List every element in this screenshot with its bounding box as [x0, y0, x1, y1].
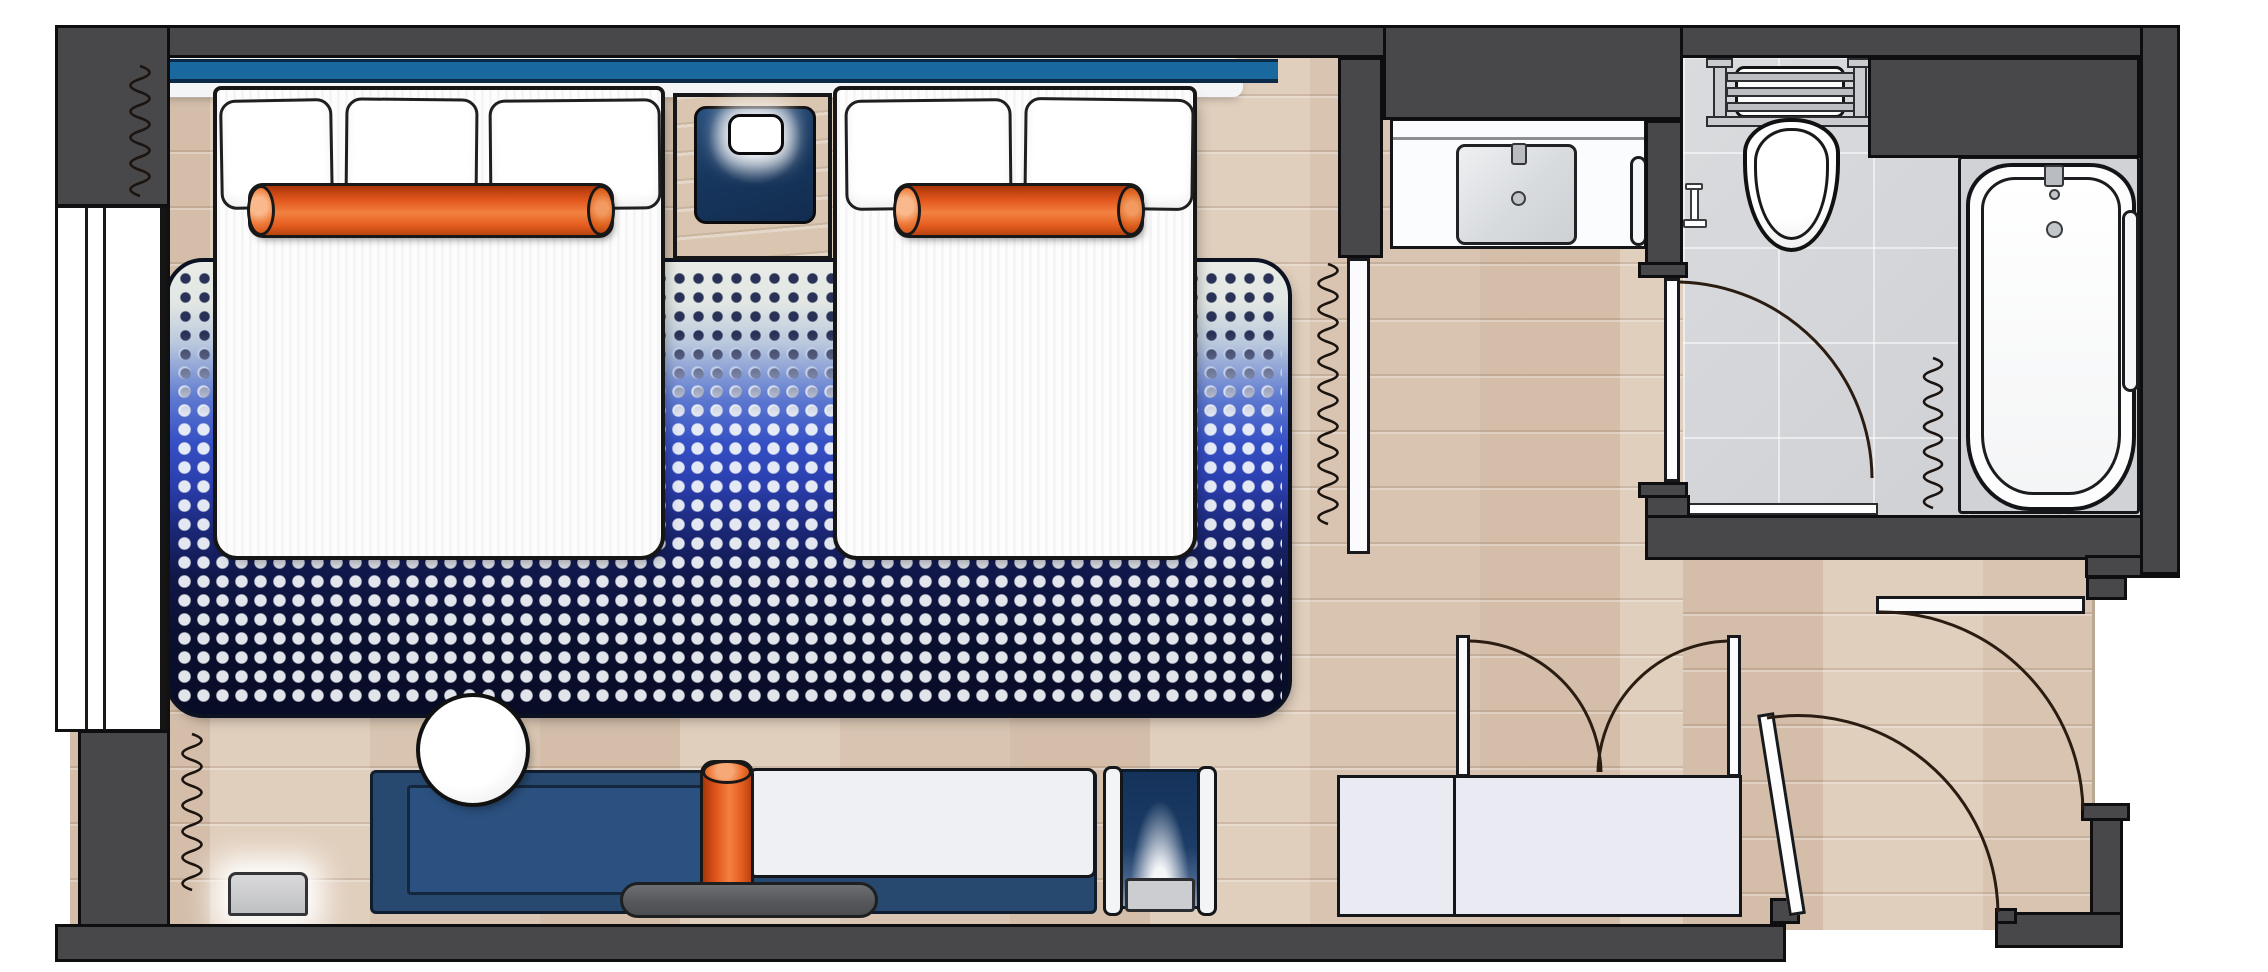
towel-shelf-post: [1853, 63, 1867, 123]
window-pane-line: [103, 208, 106, 729]
tub-towel-bar: [2122, 210, 2139, 392]
lamp: [728, 114, 784, 155]
privacy-panel: [1347, 258, 1370, 554]
wall-jamb-cap: [1995, 908, 2017, 924]
luggage-rack-strap: [1125, 878, 1195, 912]
towel-shelf-cap: [1706, 58, 1733, 68]
window-left: [55, 205, 170, 732]
sink-basin: [1456, 144, 1577, 245]
round-side-table: [416, 693, 530, 807]
wall-jamb-cap: [1638, 262, 1688, 278]
towel-shelf-rail: [1726, 102, 1855, 112]
chaise-cushion: [748, 768, 1096, 878]
towel-shelf-rail: [1726, 72, 1855, 82]
bed-2: [833, 86, 1197, 560]
toilet-bowl: [1743, 118, 1840, 252]
headboard-panel: [163, 59, 1278, 83]
bolster-end-cap: [1117, 185, 1145, 236]
bolster-end-cap: [587, 185, 615, 236]
sofa-bolster: [700, 760, 754, 896]
wall-entry-column: [2090, 805, 2123, 917]
bathtub: [1966, 163, 2136, 511]
bed-2-bolster: [894, 183, 1144, 238]
bolster-end-cap: [702, 760, 752, 784]
tub-drain: [2046, 221, 2063, 238]
connecting-door-leaf: [1876, 596, 2085, 614]
drain: [1511, 191, 1526, 206]
closet: [1337, 775, 1742, 917]
bolster-end-cap: [893, 185, 921, 236]
toilet-paper-holder-cap: [1685, 183, 1703, 190]
vanity-counter: [1390, 118, 1647, 249]
wall-bathroom-left-upper: [1645, 120, 1683, 266]
closet-door-leaf-left: [1456, 635, 1470, 777]
luggage-rack: [1103, 766, 1217, 916]
wall-bottom: [55, 924, 1786, 962]
window-inner-frame: [160, 208, 167, 729]
wall-top: [55, 25, 2180, 58]
luggage-rack-post: [1103, 766, 1123, 916]
towel-shelf-post: [1713, 63, 1727, 123]
closet-divider: [1453, 776, 1456, 916]
wall-bathroom-bottom: [1645, 515, 2180, 560]
faucet: [1511, 143, 1527, 165]
wall-block-bottom-left: [78, 730, 170, 928]
tub-deck: [1958, 156, 2140, 514]
bed-1: [213, 86, 665, 560]
bathroom-threshold: [1688, 503, 1878, 515]
toilet-paper-holder-arm: [1683, 219, 1707, 228]
bed-1-bolster: [248, 183, 614, 238]
toilet-seat-rim: [1754, 128, 1829, 240]
tub-faucet: [2044, 165, 2064, 187]
bench-rail: [620, 882, 878, 918]
backsplash-line: [1393, 137, 1644, 140]
towel-shelf-rail: [1726, 87, 1855, 97]
toilet: [1705, 60, 1875, 255]
luggage-rack-post: [1197, 766, 1217, 916]
wall-right: [2140, 25, 2180, 575]
bolster-end-cap: [247, 185, 275, 236]
floor-plan: [0, 0, 2268, 972]
wall-corner-top-left: [55, 25, 170, 207]
wall-above-vanity: [1383, 25, 1683, 120]
wall-partition-column: [1338, 57, 1383, 258]
tub-faucet-knob: [2049, 189, 2060, 200]
bathroom-door-leaf: [1664, 278, 1680, 482]
nightstand: [673, 93, 832, 260]
closet-door-leaf-right: [1727, 635, 1741, 777]
wall-right-step-notch: [2086, 576, 2127, 600]
wall-jamb-cap: [2081, 803, 2130, 821]
wall-unit-vent: [228, 872, 308, 916]
wall-above-tub: [1868, 57, 2140, 158]
window-pane-line: [85, 208, 88, 729]
